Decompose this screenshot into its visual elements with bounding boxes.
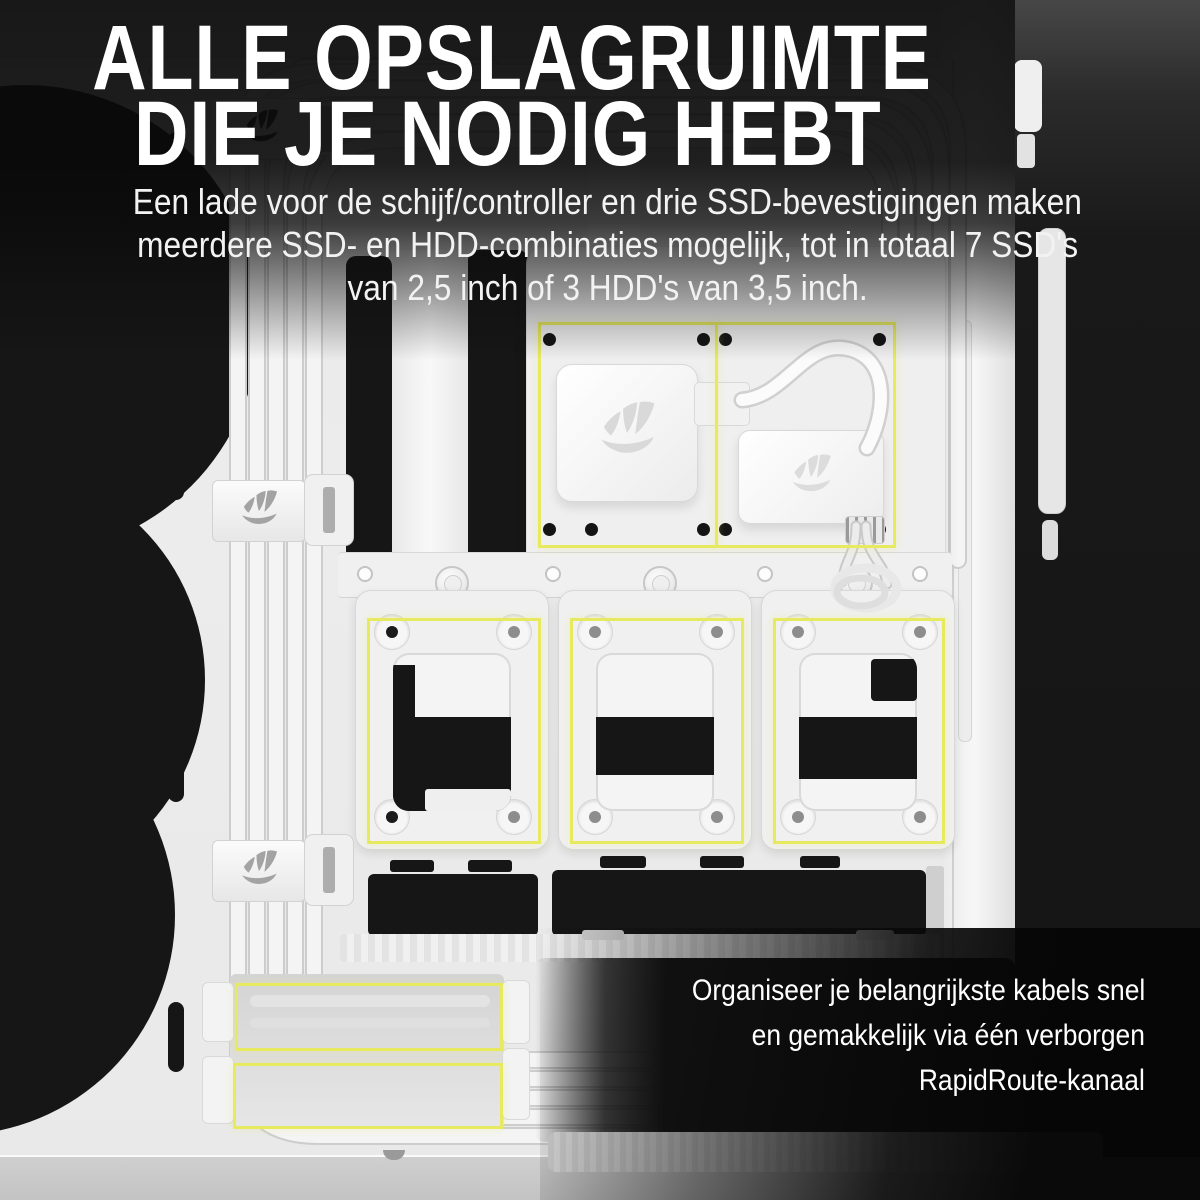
subheadline-line-2: meerdere SSD- en HDD-combinaties mogelij… bbox=[0, 223, 1200, 266]
subheadline-line-1: Een lade voor de schijf/controller en dr… bbox=[0, 180, 1200, 223]
shroud-tab bbox=[700, 856, 744, 868]
rail-slot bbox=[168, 1002, 184, 1072]
rail-slot bbox=[168, 402, 184, 500]
headline-line-2: DIE JE NODIG HEBT bbox=[0, 96, 1015, 172]
callout-line-2: en gemakkelijk via één verborgen bbox=[425, 1013, 1145, 1058]
shroud-cutout bbox=[552, 870, 926, 936]
shroud-cutout bbox=[368, 874, 538, 936]
strap-buckle bbox=[304, 474, 354, 546]
callout-text: Organiseer je belangrijkste kabels snel … bbox=[425, 968, 1145, 1103]
rail-hole bbox=[757, 566, 773, 582]
cable-clip[interactable] bbox=[202, 982, 234, 1042]
side-panel-hinge bbox=[1014, 60, 1042, 132]
subheadline: Een lade voor de schijf/controller en dr… bbox=[0, 180, 1200, 309]
rail-hole bbox=[545, 566, 561, 582]
highlight-ssd-mount-3 bbox=[773, 618, 945, 844]
headline: ALLE OPSLAGRUIMTE DIE JE NODIG HEBT bbox=[0, 20, 1015, 172]
rail-slot bbox=[168, 702, 184, 802]
product-marketing-image: ALLE OPSLAGRUIMTE DIE JE NODIG HEBT Een … bbox=[0, 0, 1200, 1200]
shroud-tab bbox=[468, 860, 512, 872]
corsair-sails-icon bbox=[238, 850, 280, 892]
subheadline-line-3: van 2,5 inch of 3 HDD's van 3,5 inch. bbox=[0, 266, 1200, 309]
side-panel-hinge bbox=[1017, 134, 1035, 168]
rail-hole bbox=[912, 566, 928, 582]
rail-hole bbox=[357, 566, 373, 582]
column-bracket bbox=[958, 320, 972, 742]
shroud-tab bbox=[390, 860, 434, 872]
callout-line-3: RapidRoute-kanaal bbox=[425, 1058, 1145, 1103]
highlight-ssd-mount-1 bbox=[367, 618, 541, 844]
callout-line-1: Organiseer je belangrijkste kabels snel bbox=[425, 968, 1145, 1013]
cable-strap[interactable] bbox=[212, 480, 306, 542]
shroud-tab bbox=[800, 856, 840, 868]
highlight-ssd-mount-2 bbox=[570, 618, 744, 844]
strap-buckle bbox=[304, 834, 354, 906]
shroud-tab bbox=[600, 856, 646, 868]
corsair-sails-icon bbox=[238, 490, 280, 532]
cable-strap[interactable] bbox=[212, 840, 306, 902]
side-panel-hinge bbox=[1042, 520, 1058, 560]
cable-clip[interactable] bbox=[202, 1056, 234, 1124]
